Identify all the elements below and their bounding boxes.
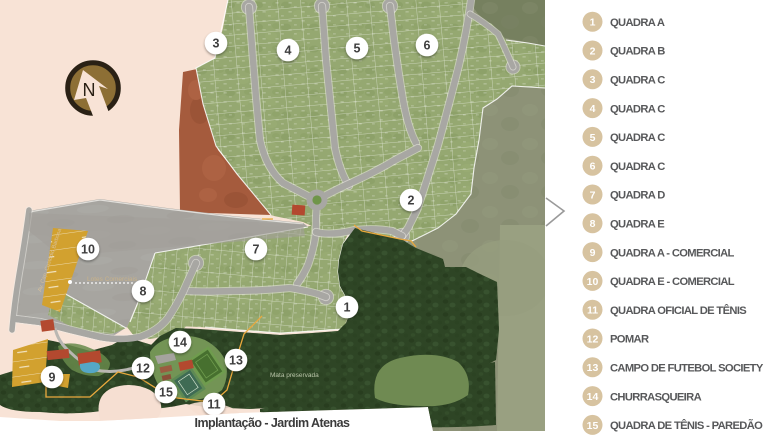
svg-text:QUADRA C: QUADRA C — [610, 161, 665, 173]
svg-text:15: 15 — [159, 385, 173, 399]
svg-text:2: 2 — [408, 193, 415, 207]
svg-text:11: 11 — [587, 305, 598, 317]
svg-text:QUADRA C: QUADRA C — [610, 103, 665, 115]
svg-text:8: 8 — [590, 218, 596, 230]
svg-text:9: 9 — [590, 247, 596, 259]
svg-text:QUADRA A: QUADRA A — [610, 17, 665, 29]
svg-text:10: 10 — [81, 242, 95, 256]
svg-text:QUADRA B: QUADRA B — [610, 46, 665, 58]
svg-text:7: 7 — [253, 242, 260, 256]
svg-text:QUADRA C: QUADRA C — [610, 75, 665, 87]
svg-text:3: 3 — [213, 36, 220, 50]
svg-text:QUADRA OFICIAL DE TÊNIS: QUADRA OFICIAL DE TÊNIS — [610, 304, 747, 317]
svg-text:12: 12 — [587, 333, 599, 345]
svg-text:6: 6 — [424, 38, 431, 52]
svg-text:CAMPO DE FUTEBOL SOCIETY: CAMPO DE FUTEBOL SOCIETY — [610, 363, 764, 375]
svg-text:14: 14 — [587, 391, 599, 403]
svg-text:6: 6 — [590, 161, 596, 173]
svg-text:1: 1 — [590, 17, 596, 29]
svg-text:14: 14 — [173, 335, 187, 349]
svg-text:7: 7 — [590, 189, 596, 201]
svg-text:4: 4 — [285, 43, 292, 57]
svg-text:15: 15 — [587, 420, 599, 432]
svg-text:QUADRA A - COMERCIAL: QUADRA A - COMERCIAL — [610, 247, 735, 259]
svg-text:POMAR: POMAR — [610, 334, 649, 346]
svg-text:Mata preservada: Mata preservada — [270, 372, 319, 379]
svg-text:CHURRASQUEIRA: CHURRASQUEIRA — [610, 391, 702, 403]
svg-text:11: 11 — [207, 397, 220, 411]
svg-text:4: 4 — [590, 103, 596, 115]
svg-text:Implantação - Jardim Atenas: Implantação - Jardim Atenas — [195, 416, 350, 430]
svg-text:10: 10 — [587, 276, 599, 288]
svg-text:N: N — [83, 80, 96, 100]
svg-text:QUADRA E - COMERCIAL: QUADRA E - COMERCIAL — [610, 276, 735, 288]
svg-text:QUADRA DE TÊNIS - PAREDÃO: QUADRA DE TÊNIS - PAREDÃO — [610, 419, 763, 432]
svg-text:QUADRA D: QUADRA D — [610, 190, 665, 202]
svg-text:2: 2 — [590, 45, 596, 57]
svg-text:9: 9 — [49, 370, 56, 384]
svg-text:8: 8 — [140, 284, 147, 298]
svg-text:1: 1 — [344, 300, 351, 314]
svg-text:QUADRA C: QUADRA C — [610, 132, 665, 144]
svg-text:5: 5 — [354, 41, 361, 55]
svg-text:Lotes Comerciais: Lotes Comerciais — [87, 276, 138, 283]
svg-text:3: 3 — [590, 74, 596, 86]
svg-text:12: 12 — [136, 361, 150, 375]
svg-text:13: 13 — [587, 362, 599, 374]
svg-text:QUADRA E: QUADRA E — [610, 219, 665, 231]
svg-text:5: 5 — [590, 132, 596, 144]
svg-text:13: 13 — [229, 353, 243, 367]
